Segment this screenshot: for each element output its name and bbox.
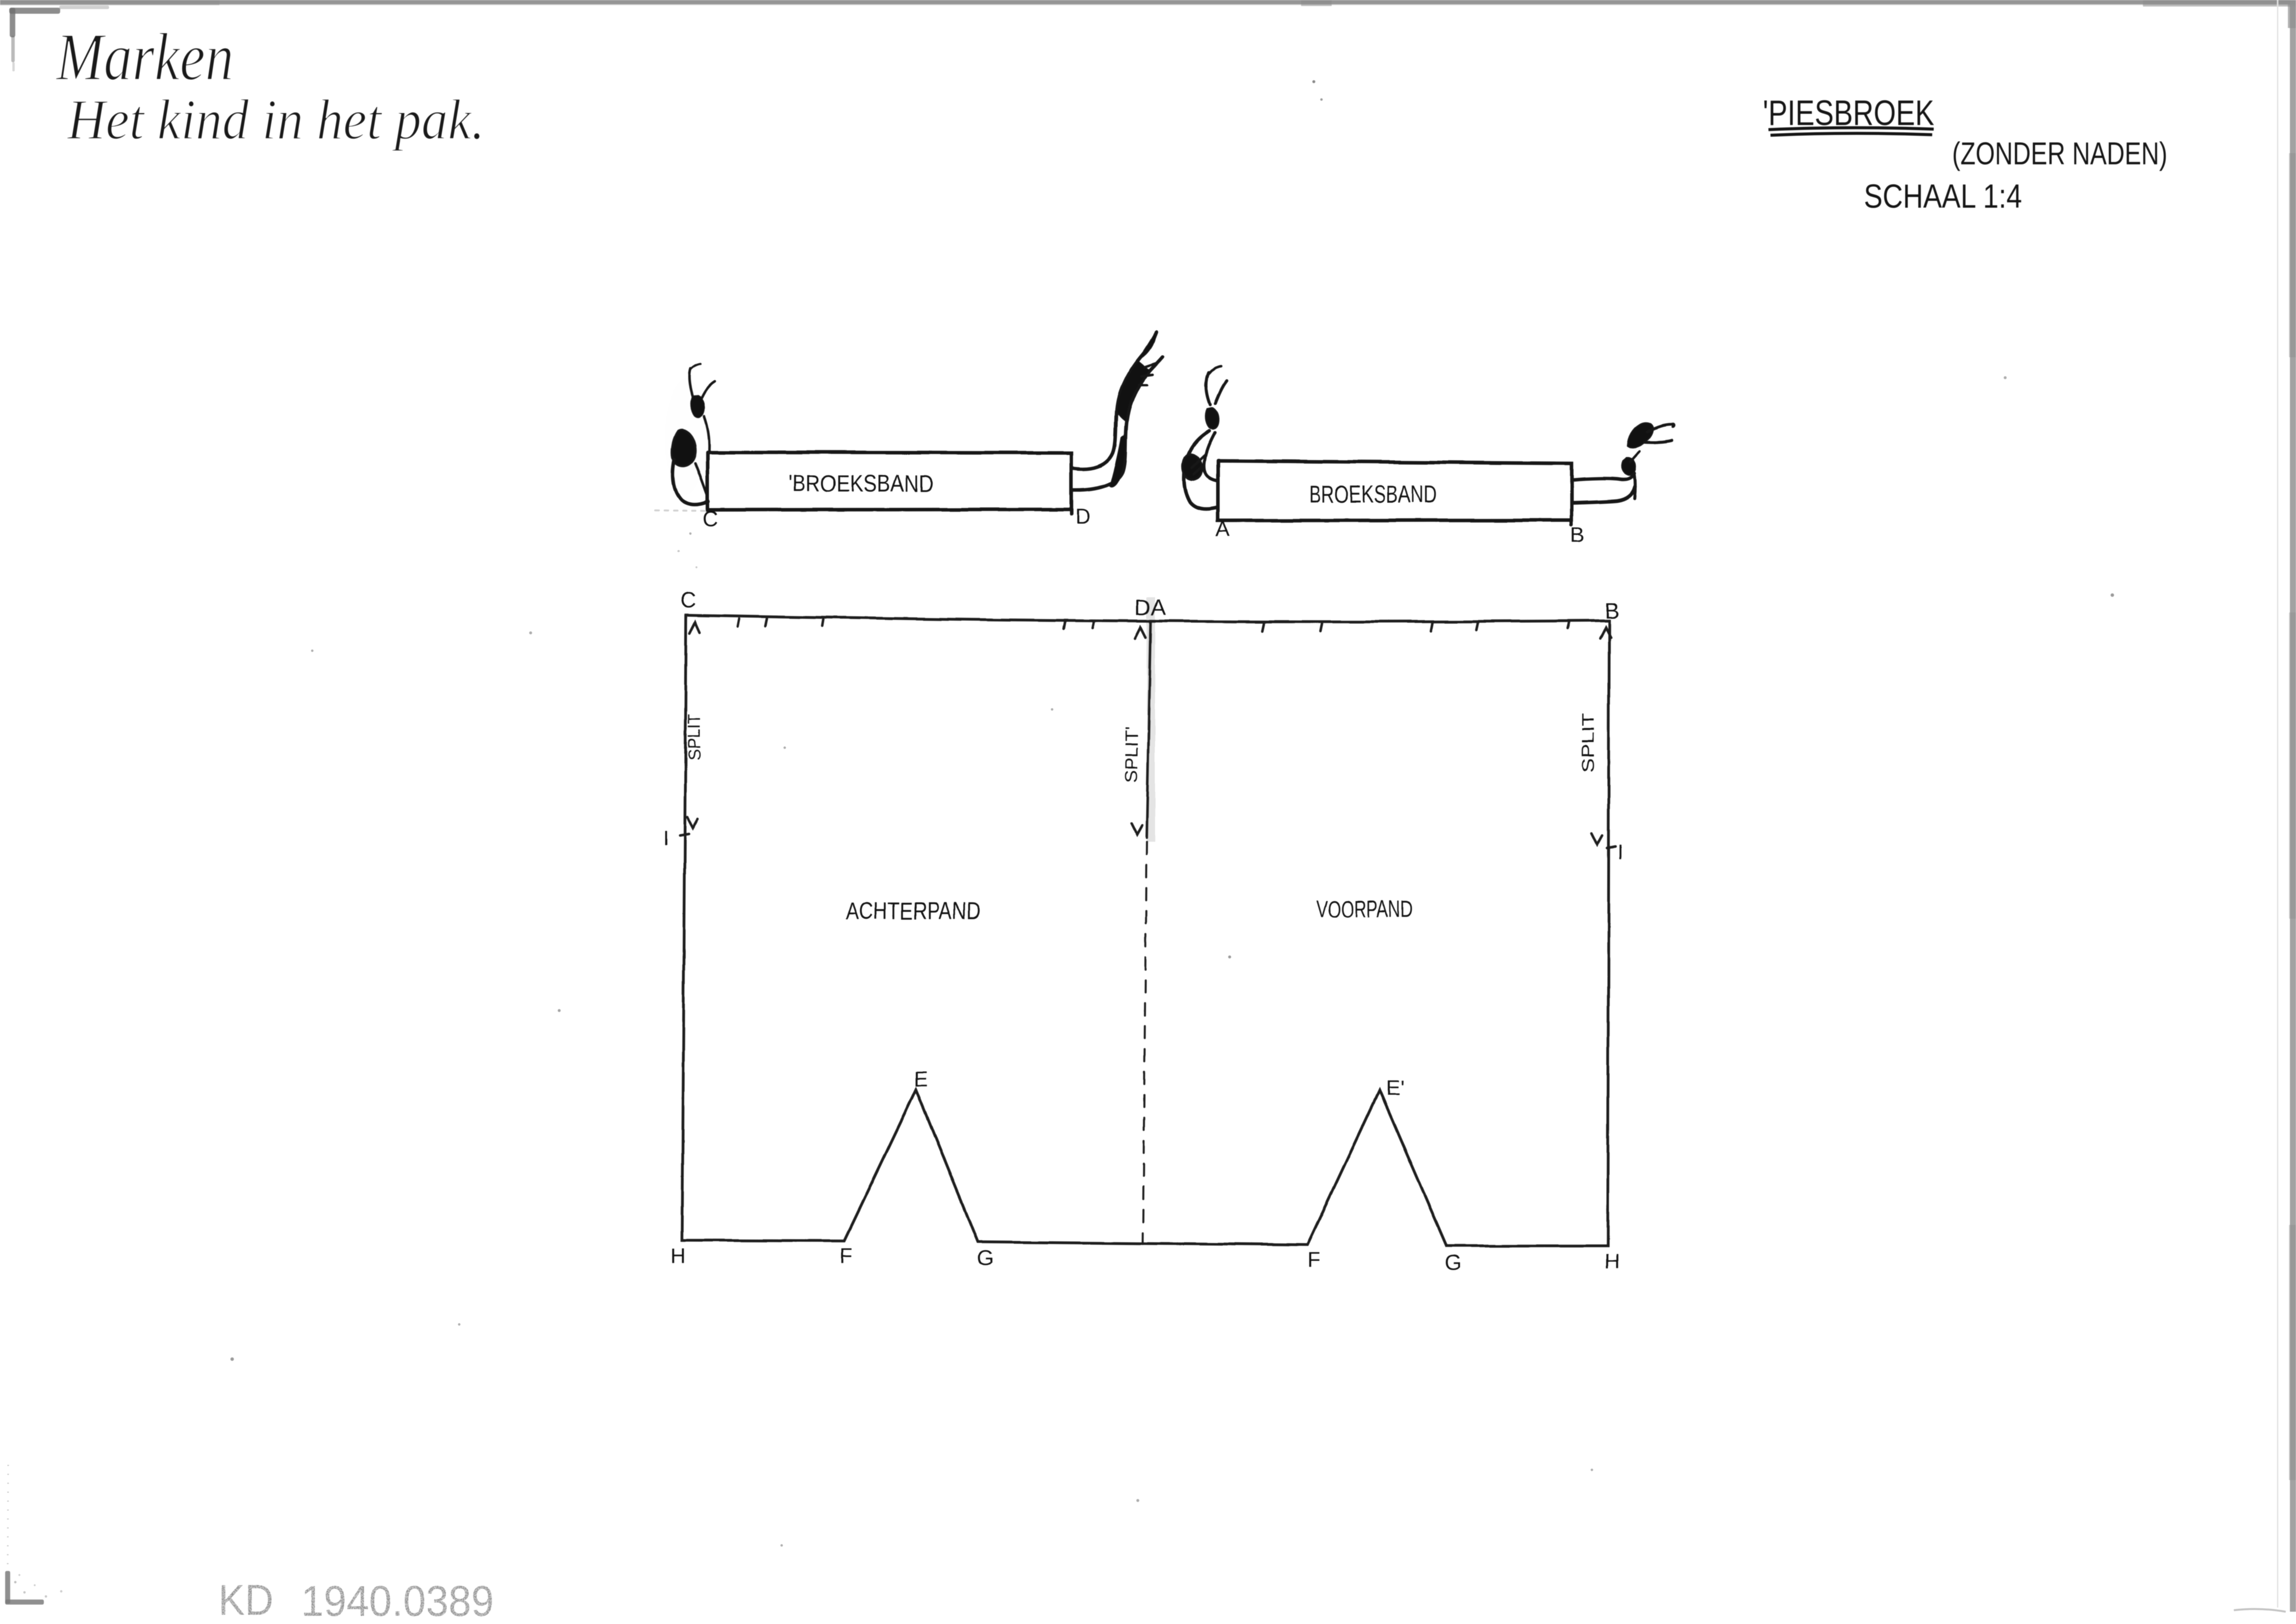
svg-text:'BROEKSBAND: 'BROEKSBAND bbox=[788, 470, 934, 497]
svg-text:Marken: Marken bbox=[55, 19, 234, 94]
svg-text:DA: DA bbox=[1135, 595, 1166, 620]
svg-text:F: F bbox=[839, 1243, 853, 1267]
svg-text:SPLIT: SPLIT bbox=[1579, 713, 1598, 773]
svg-text:E': E' bbox=[1386, 1076, 1404, 1100]
svg-text:I: I bbox=[663, 827, 668, 850]
svg-text:F: F bbox=[1308, 1247, 1321, 1271]
svg-text:KD: KD bbox=[218, 1576, 273, 1624]
svg-text:VOORPAND: VOORPAND bbox=[1317, 896, 1413, 922]
svg-text:I: I bbox=[1617, 841, 1623, 863]
svg-text:1940.0389: 1940.0389 bbox=[301, 1577, 494, 1624]
svg-text:B: B bbox=[1570, 523, 1585, 547]
svg-text:C: C bbox=[681, 588, 696, 612]
svg-text:C: C bbox=[703, 506, 718, 530]
svg-text:B: B bbox=[1605, 598, 1619, 623]
svg-text:ACHTERPAND: ACHTERPAND bbox=[845, 898, 981, 925]
svg-text:SPLIT': SPLIT' bbox=[1122, 726, 1141, 783]
svg-text:Het kind in het pak.: Het kind in het pak. bbox=[66, 88, 485, 152]
svg-text:(ZONDER NADEN): (ZONDER NADEN) bbox=[1952, 136, 2167, 171]
svg-text:A: A bbox=[1216, 517, 1230, 541]
svg-text:SCHAAL 1:4: SCHAAL 1:4 bbox=[1864, 177, 2022, 215]
svg-text:H: H bbox=[1605, 1249, 1620, 1273]
svg-text:BROEKSBAND: BROEKSBAND bbox=[1309, 481, 1437, 508]
svg-text:D: D bbox=[1075, 504, 1090, 528]
svg-text:E: E bbox=[914, 1067, 928, 1091]
svg-text:G: G bbox=[977, 1245, 994, 1269]
svg-text:G: G bbox=[1444, 1250, 1461, 1274]
svg-text:H: H bbox=[670, 1244, 686, 1268]
svg-text:SPLIT: SPLIT bbox=[685, 713, 704, 760]
